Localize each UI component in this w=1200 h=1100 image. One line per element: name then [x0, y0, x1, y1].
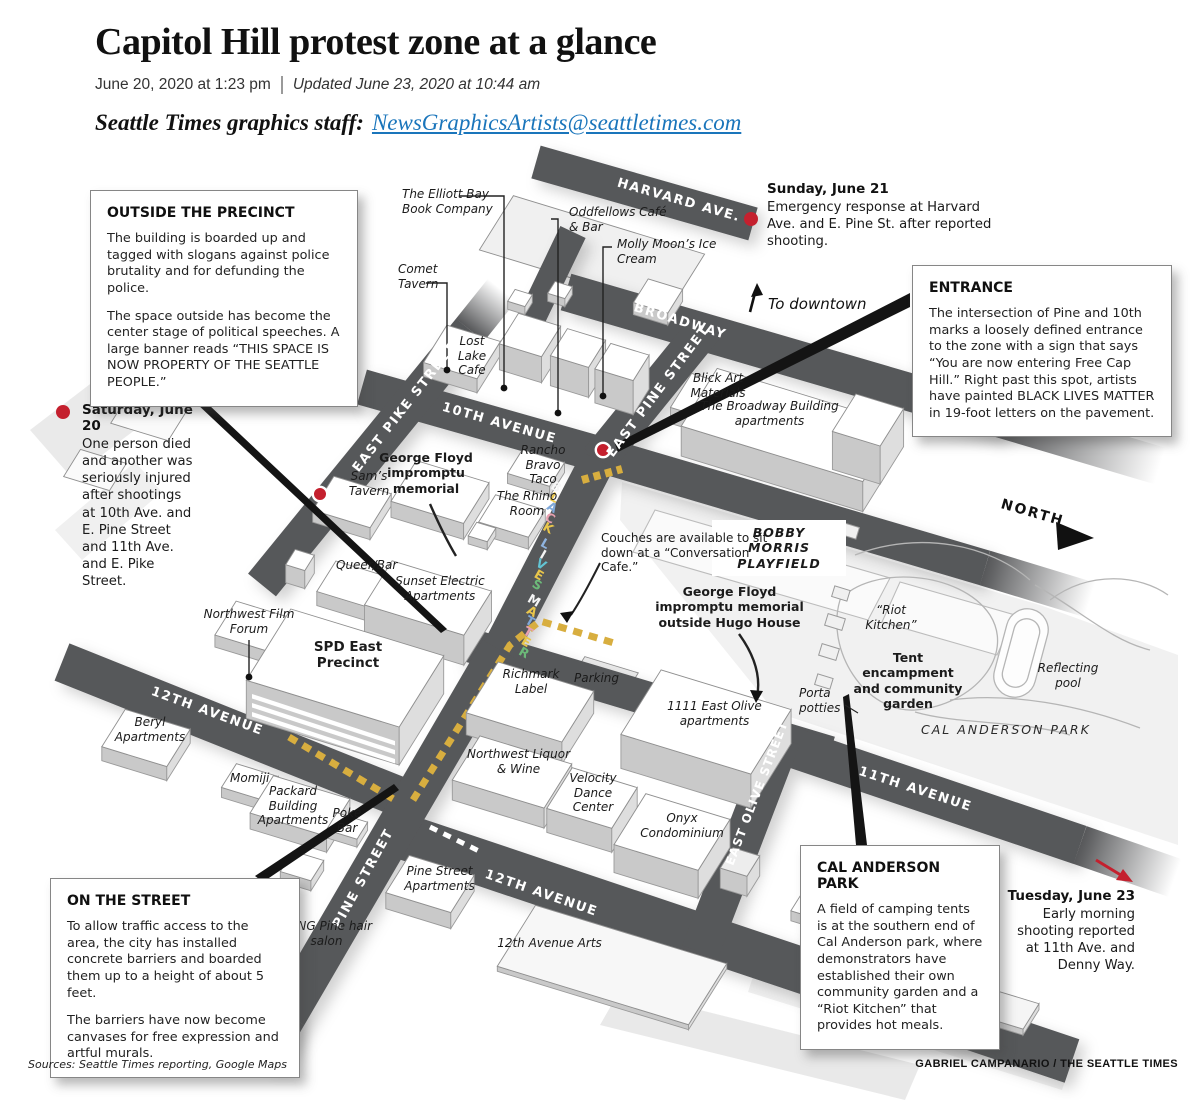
label-12th-ave-arts: 12th Avenue Arts	[492, 936, 607, 951]
byline-label: Seattle Times graphics staff:	[95, 110, 364, 135]
label-1111-east-olive: 1111 East Olive apartments	[652, 699, 777, 728]
header: Capitol Hill protest zone at a glance Ju…	[95, 22, 741, 136]
label-sunset-electric: Sunset Electric Apartments	[384, 574, 496, 603]
label-spd-east-precinct: SPD East Precinct	[300, 639, 396, 672]
callout-cal-anderson-heading: CAL ANDERSON PARK	[817, 860, 983, 892]
tuesday-incident: Tuesday, June 23 Early morning shooting …	[1003, 888, 1135, 975]
callout-on-the-street-heading: ON THE STREET	[67, 893, 283, 909]
label-rhino-room: The Rhino Room	[484, 489, 570, 518]
label-oddfellows: Oddfellows Café & Bar	[569, 205, 679, 234]
label-reflecting-pool: Reflecting pool	[1031, 661, 1105, 690]
label-couches-note: Couches are available to sit down at a “…	[601, 531, 769, 575]
callout-outside-precinct-p1: The building is boarded up and tagged wi…	[107, 231, 341, 298]
sunday-incident-title: Sunday, June 21	[767, 181, 1007, 197]
saturday-incident-body: One person died and another was seriousl…	[82, 436, 194, 590]
page-title: Capitol Hill protest zone at a glance	[95, 22, 741, 64]
saturday-incident-title: Saturday, June 20	[82, 402, 194, 434]
sunday-incident-dot	[744, 212, 758, 226]
label-poke-bar: Poke Bar	[327, 806, 367, 835]
label-elliott-bay: The Elliott Bay Book Company	[402, 187, 494, 216]
label-queer-bar: Queer/Bar	[336, 558, 397, 573]
label-beryl: Beryl Apartments	[107, 715, 193, 744]
label-nw-film-forum: Northwest Film Forum	[203, 607, 295, 636]
tuesday-incident-body: Early morning shooting reported at 11th …	[1003, 906, 1135, 975]
map: BLACKLIVESMATTER HARVARD AVE. BROADWAY E…	[0, 0, 1200, 1100]
sunday-incident: Sunday, June 21 Emergency response at Ha…	[767, 181, 1007, 250]
dateline: June 20, 2020 at 1:23 pm Updated June 23…	[95, 76, 741, 94]
callout-on-the-street: ON THE STREET To allow traffic access to…	[50, 878, 300, 1078]
label-tent-encampment: Tent encampment and community garden	[852, 650, 964, 711]
sunday-incident-body: Emergency response at Harvard Ave. and E…	[767, 199, 1007, 250]
label-comet-tavern: Comet Tavern	[398, 262, 453, 291]
label-lost-lake: Lost Lake Cafe	[446, 334, 498, 378]
label-velocity: Velocity Dance Center	[557, 771, 629, 815]
sources-note: Sources: Seattle Times reporting, Google…	[28, 1058, 287, 1071]
page: { "header": { "title": "Capitol Hill pro…	[0, 0, 1200, 1100]
label-molly-moons: Molly Moon’s Ice Cream	[617, 237, 727, 266]
label-riot-kitchen: “Riot Kitchen”	[855, 603, 927, 632]
artist-credit: GABRIEL CAMPANARIO / THE SEATTLE TIMES	[915, 1058, 1178, 1070]
callout-outside-precinct-p2: The space outside has become the center …	[107, 309, 341, 392]
callout-on-the-street-p1: To allow traffic access to the area, the…	[67, 919, 283, 1002]
label-pine-apts: Pine Street Apartments	[387, 864, 492, 893]
to-downtown-label: To downtown	[768, 295, 867, 313]
published-date: June 20, 2020 at 1:23 pm	[95, 76, 271, 94]
dateline-divider	[281, 76, 283, 94]
label-packard: Packard Building Apartments	[247, 784, 339, 828]
saturday-incident: Saturday, June 20 One person died and an…	[82, 402, 194, 590]
label-broadway-building: The Broadway Building apartments	[697, 399, 842, 428]
byline-email-link[interactable]: NewsGraphicsArtists@seattletimes.com	[372, 110, 741, 135]
callout-entrance-heading: ENTRANCE	[929, 280, 1155, 296]
label-hugo-house-memorial: George Floyd impromptu memorial outside …	[652, 584, 807, 630]
callout-entrance: ENTRANCE The intersection of Pine and 10…	[912, 265, 1172, 437]
label-onyx: Onyx Condominium	[627, 811, 737, 840]
callout-entrance-p1: The intersection of Pine and 10th marks …	[929, 306, 1155, 422]
saturday-incident-dot	[56, 405, 70, 419]
callout-on-the-street-p2: The barriers have now become canvases fo…	[67, 1013, 283, 1063]
tuesday-incident-title: Tuesday, June 23	[1003, 888, 1135, 904]
label-cal-anderson-park: CAL ANDERSON PARK	[921, 722, 1091, 737]
label-parking: Parking	[574, 671, 619, 686]
byline: Seattle Times graphics staff:NewsGraphic…	[95, 110, 741, 136]
label-richmark: Richmark Label	[489, 667, 573, 696]
updated-date: Updated June 23, 2020 at 10:44 am	[293, 76, 540, 94]
downtown-arrow	[750, 283, 763, 312]
callout-cal-anderson: CAL ANDERSON PARK A field of camping ten…	[800, 845, 1000, 1050]
callout-outside-precinct-heading: OUTSIDE THE PRECINCT	[107, 205, 341, 221]
label-gf-memorial: George Floyd impromptu memorial	[378, 450, 474, 496]
label-blick: Blick Art Materials	[676, 371, 760, 400]
callout-outside-precinct: OUTSIDE THE PRECINCT The building is boa…	[90, 190, 358, 407]
label-rancho-bravo: Rancho Bravo Taco	[512, 443, 574, 487]
callout-cal-anderson-p1: A field of camping tents is at the south…	[817, 902, 983, 1035]
label-porta-potties: Porta potties	[799, 686, 857, 715]
